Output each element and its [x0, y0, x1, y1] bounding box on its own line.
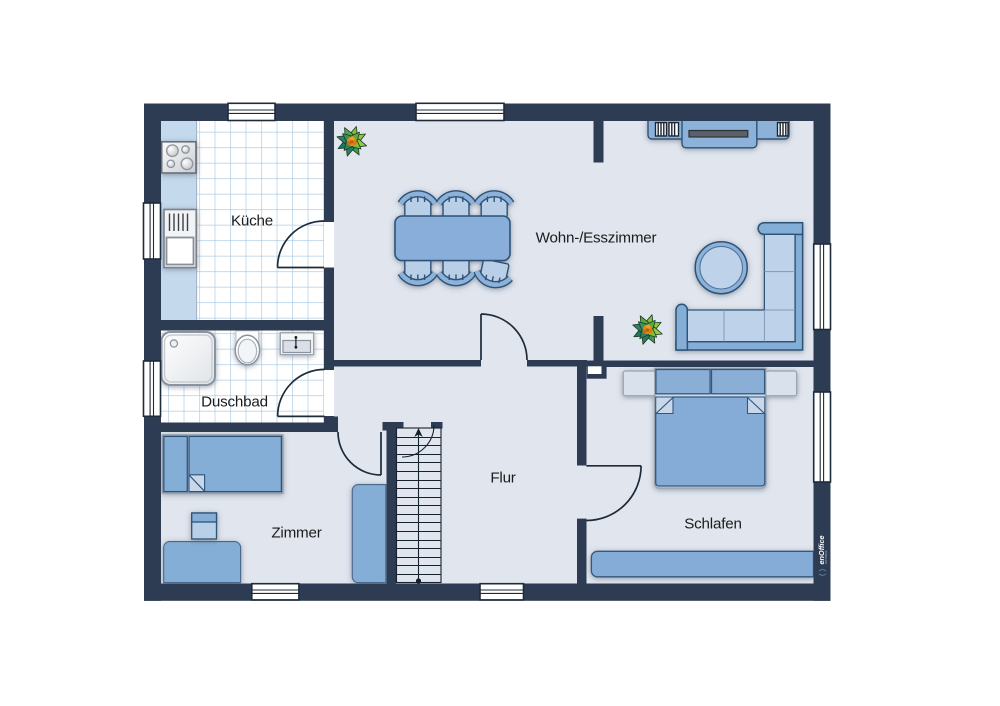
svg-text:Küche: Küche [231, 213, 273, 230]
svg-text:Duschbad: Duschbad [201, 394, 268, 411]
svg-text:Schlafen: Schlafen [684, 516, 742, 533]
svg-text:( ): ( ) [817, 568, 826, 576]
svg-text:Flur: Flur [490, 470, 515, 487]
svg-text:SOFTWARE: SOFTWARE [825, 550, 828, 564]
svg-text:Zimmer: Zimmer [271, 525, 321, 542]
svg-text:Wohn-/Esszimmer: Wohn-/Esszimmer [536, 230, 657, 247]
